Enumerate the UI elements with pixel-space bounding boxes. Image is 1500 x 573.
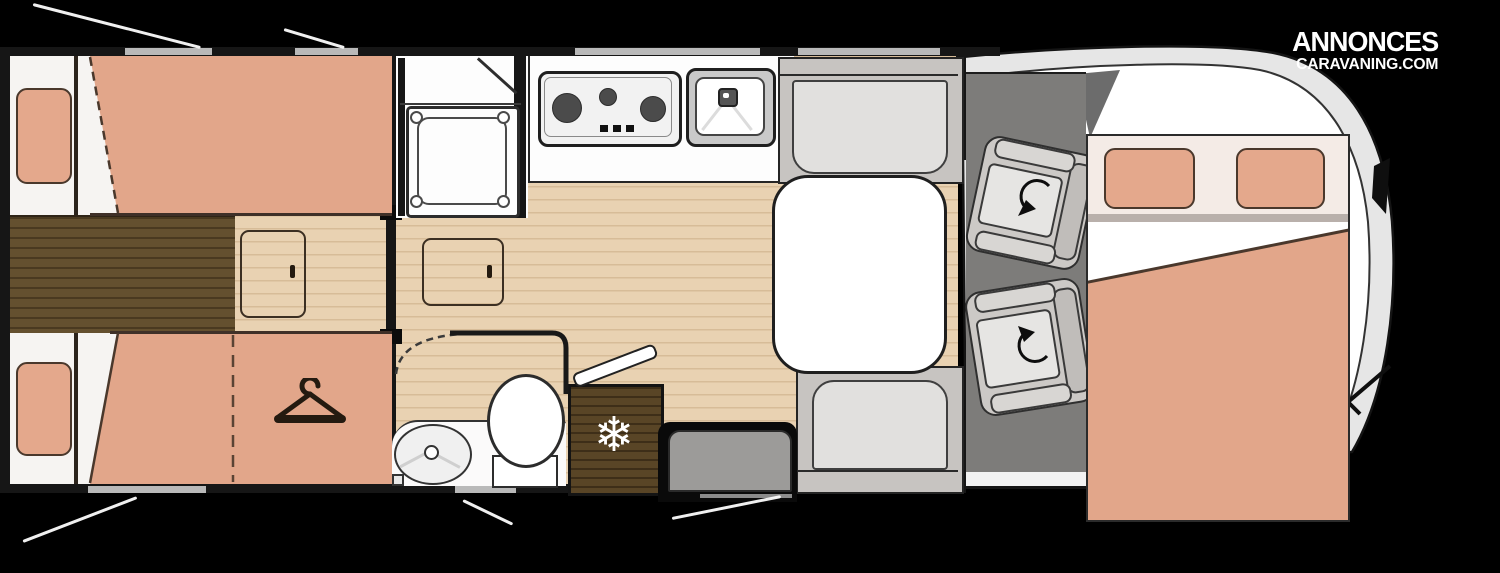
dinette-table <box>772 175 947 374</box>
bench-base-line <box>798 470 958 472</box>
cab-floor <box>966 72 1086 474</box>
window <box>575 48 760 55</box>
wardrobe-divider-dashed <box>228 333 238 484</box>
shower-screw <box>497 195 510 208</box>
shower-screw <box>497 111 510 124</box>
shower-screw <box>410 111 423 124</box>
brand-logo: ANNONCES CARAVANING.COM <box>1286 28 1438 73</box>
bench-backrest-line <box>780 74 958 76</box>
window-marker <box>284 28 345 49</box>
window-marker <box>462 499 513 525</box>
burner <box>552 93 582 123</box>
brand-line-1: ANNONCES <box>1292 28 1438 56</box>
window <box>798 48 940 55</box>
brand-line-2: CARAVANING.COM <box>1289 57 1438 73</box>
shower-tray-inner <box>417 117 507 205</box>
faucet-dot <box>723 93 729 98</box>
motorhome-floor-plan: ❄ <box>0 0 1500 573</box>
door-swing-arc <box>396 334 462 374</box>
hanger-icon <box>270 378 350 434</box>
twin-bed-rear-top <box>84 56 392 215</box>
burner <box>640 96 666 122</box>
rotation-arrow-icon <box>1010 320 1056 366</box>
bedroom-door-leaf <box>240 230 306 318</box>
shower-wall <box>398 58 405 216</box>
blanket <box>1088 222 1348 520</box>
door-handle <box>290 265 295 278</box>
bed-edge <box>90 213 392 216</box>
shower-screw <box>410 195 423 208</box>
bed-slant-edges <box>80 50 128 494</box>
window <box>125 48 212 55</box>
hob-knob <box>626 125 634 132</box>
head-shelf-divider <box>74 333 78 484</box>
rotation-arrow-icon <box>1012 176 1058 222</box>
bed-header-band <box>1088 214 1348 222</box>
burner <box>599 88 617 106</box>
hob-knob <box>613 125 621 132</box>
door-handle <box>487 265 492 278</box>
window <box>295 48 358 55</box>
basin-corner-screw <box>392 474 404 486</box>
entry-step <box>668 430 792 492</box>
drop-down-bed <box>1086 134 1350 522</box>
hob-knob <box>600 125 608 132</box>
bench-cushion <box>812 380 948 470</box>
bench-cushion <box>792 80 948 174</box>
pillow <box>16 88 72 184</box>
toilet <box>487 374 565 468</box>
bed-edge <box>110 331 392 334</box>
wall-rear <box>0 47 10 493</box>
shower-shelf-line <box>400 103 521 105</box>
basin-drain <box>424 445 439 460</box>
cab-sill <box>966 472 1086 489</box>
pillow <box>1104 148 1195 209</box>
head-shelf-divider <box>74 56 78 215</box>
pillow <box>16 362 72 456</box>
window-marker <box>22 496 137 543</box>
snowflake-icon: ❄ <box>586 408 642 464</box>
window-marker <box>33 3 201 49</box>
pillow <box>1236 148 1325 209</box>
